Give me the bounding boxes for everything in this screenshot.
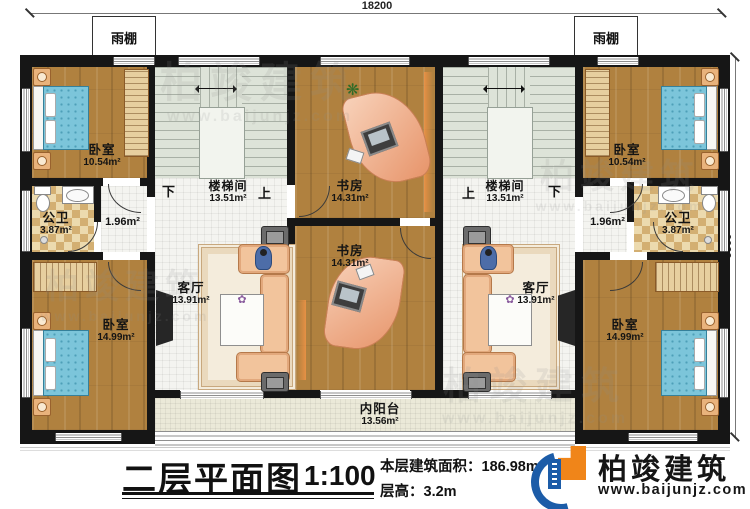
label-stair-down-left: 下 [162,181,175,200]
baijun-logo-icon [531,444,595,506]
window [55,433,122,441]
floor-drain-symbol [40,236,48,244]
wall-interior [575,252,610,260]
nightstand-symbol [701,398,719,416]
stair-treads [242,67,287,178]
stair-direction-arrow-icon [198,88,234,89]
wall-interior [287,390,320,398]
label-corridor-right: 1.96m² [580,216,635,228]
wall-interior [435,226,443,398]
wall-interior [140,252,155,260]
canopy-left: 雨棚 [92,16,156,58]
label-bedroom-top-left: 卧室 10.54m² [62,143,142,168]
nightstand-symbol [701,68,719,86]
person-figure [255,246,272,270]
canopy-right: 雨棚 [574,16,638,58]
stair-direction-arrow-icon [486,88,522,89]
nightstand-symbol [701,152,719,170]
stairwell-right [443,67,575,178]
bed-symbol [661,86,717,150]
person-figure [480,246,497,270]
closet-symbol [33,262,97,292]
label-study-lower: 书房 14.31m² [315,244,385,269]
floor-area-label: 本层建筑面积： [380,459,482,475]
label-bedroom-bottom-left: 卧室 14.99m² [76,318,156,343]
right-dimension-line [735,57,736,437]
label-balcony: 内阳台 13.56m² [340,402,420,427]
window [720,328,728,398]
coffee-table-symbol: ✿ [220,294,264,346]
wall-interior [647,178,730,186]
top-dimension-line [30,13,722,14]
pillow [694,338,705,362]
closet-symbol [655,262,719,292]
sink-symbol [662,189,685,202]
title-underline [122,492,374,495]
sofa-symbol [260,274,289,354]
window [597,57,639,65]
nightstand-symbol [33,152,51,170]
window [468,391,552,399]
top-dimension-label: 18200 [355,0,399,12]
window [22,328,30,398]
toilet-symbol [36,194,50,212]
wall-glow [297,300,306,380]
pillow [45,120,56,144]
wall-interior [147,252,155,444]
floor-area-text: 本层建筑面积：186.98m² [380,455,544,476]
side-table-symbol [463,372,491,392]
floor-height-label: 层高： [380,484,424,500]
wall-interior [550,390,575,398]
nightstand-symbol [33,312,51,330]
window [178,57,260,65]
balcony-railing [155,431,575,446]
bed-symbol [33,86,89,150]
window [320,391,412,399]
wall-interior [430,218,443,226]
wall-interior [155,390,180,398]
label-stair-down-right: 下 [548,181,561,200]
stairwell-left [155,67,287,178]
wall-interior [20,178,103,186]
drawing-scale: 1:100 [304,460,376,492]
label-corridor-left: 1.96m² [95,216,150,228]
window [628,433,698,441]
pillow [45,366,56,390]
side-table-symbol [261,372,289,392]
label-bedroom-bottom-right: 卧室 14.99m² [585,318,665,343]
window [720,190,728,252]
window [320,57,410,65]
wall-interior [140,178,155,186]
wall-interior [287,218,400,226]
pillow [694,366,705,390]
plant-icon: ❋ [346,80,359,100]
label-stairwell-right: 楼梯间 13.51m² [470,180,540,205]
floor-height-text: 层高：3.2m [380,480,457,501]
brand-website: www.baijunjz.com [598,482,747,498]
pillow [694,93,705,117]
wall-interior [575,55,583,197]
label-bathroom-right: 公卫 3.87m² [648,211,708,236]
label-stairwell-left: 楼梯间 13.51m² [193,180,263,205]
stair-landing [487,107,533,179]
window [180,391,264,399]
floor-plan-sheet: 18200 9900 雨棚 雨棚 [0,0,750,509]
label-stair-up-left: 上 [258,183,271,202]
label-bathroom-left: 公卫 3.87m² [26,211,86,236]
wall-interior [410,390,443,398]
pillow [45,338,56,362]
wall-interior [435,55,443,226]
title-underline-thin [122,498,374,499]
label-study-upper: 书房 14.31m² [315,179,385,204]
window [113,57,155,65]
window [720,88,728,152]
label-living-right: 客厅 13.91m² [505,281,567,306]
wall-interior [575,252,583,444]
floor-height-value: 3.2m [424,484,457,500]
pillow [45,93,56,117]
stair-landing [199,107,245,179]
pillow [694,120,705,144]
sink-symbol [66,189,89,202]
wall-interior [575,178,610,186]
window [468,57,550,65]
wall-interior [647,252,730,260]
window [22,88,30,152]
floor-drain-symbol [704,236,712,244]
label-living-left: 客厅 13.91m² [160,281,222,306]
bed-symbol [661,330,717,396]
stair-treads [530,67,575,178]
toilet-symbol [702,194,716,212]
wall-interior [20,252,103,260]
nightstand-symbol [701,312,719,330]
label-bedroom-top-right: 卧室 10.54m² [587,143,667,168]
logo-building-blue-icon [548,459,561,489]
nightstand-symbol [33,68,51,86]
nightstand-symbol [33,398,51,416]
wall-interior [287,55,295,185]
